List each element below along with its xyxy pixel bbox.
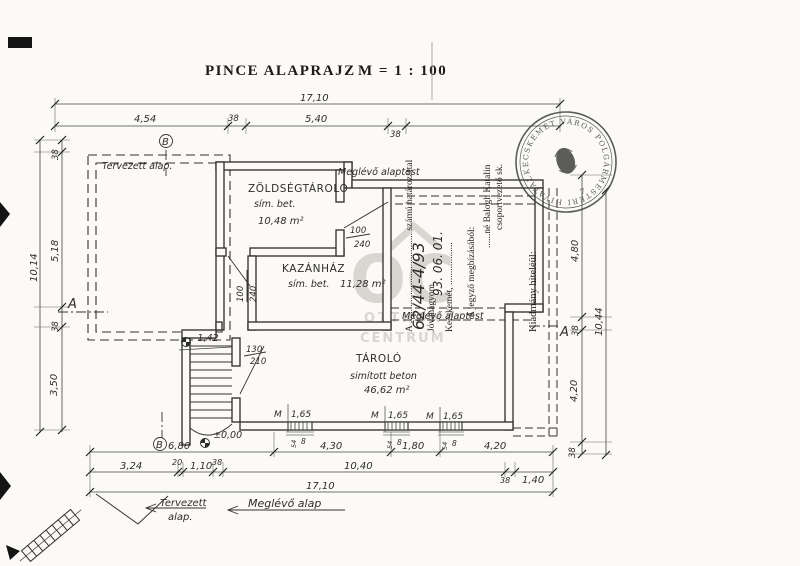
official-stamp: KECSKEMÉT VÁROS POLGÁRMESTERI HIVATALA •… [503,99,629,225]
corner-symbol [15,494,168,566]
permit-certification-line: Kiadmány hiteléül: [528,251,539,332]
dim-bottom2-6: 38 [500,476,510,485]
dim-bottom1-2: 4,30 [320,441,342,452]
dim-bottom1-1: 6,80 [168,441,190,452]
permit-city-line: Kecskemét, .................. [445,242,455,332]
door-leaf-1 [344,202,388,228]
stamp-coat-of-arms [553,146,578,176]
dim-bottom2-1: 3,24 [120,461,142,472]
room-finish-vegetable-store: sím. bet. [254,199,296,210]
corner-v-lines [96,494,168,524]
scan-artifacts [0,37,32,560]
section-marker-b-bottom: B [156,440,163,451]
level-entrance: ±0,00 [213,430,242,441]
dim-top-3: 5,40 [305,114,327,125]
dimension-labels: 17,10 4,54 38 5,40 38 10,14 38 5,18 38 3… [29,93,605,492]
scan-blot-left-1 [0,202,10,227]
window2-mark: M [371,411,379,421]
dim-right-3: 4,20 [569,380,580,402]
door1-width: 100 [350,226,366,236]
dim-bottom2-3: 1,10 [190,461,212,472]
planned-foundation-dashed [88,155,230,340]
dim-bottom2-5: 10,40 [344,461,373,472]
scan-blot-bottom-left [6,545,20,560]
planned-foundation-inner [96,163,222,332]
dim-bottom1-4: 4,20 [484,441,506,452]
dim-bottom-overall: 17,10 [306,481,335,492]
window3-sill-a: 54 [441,442,449,450]
dim-right-2: 38 [571,325,581,336]
window1-mark: M [274,410,282,420]
dim-right-1: 4,80 [570,240,581,262]
planned-foundation-label: Tervezett alap. [102,161,172,172]
dim-bottom2-4: 38 [212,458,222,467]
foundation-strip-bottom-right [513,428,557,436]
permit-date-handwritten: 93. 06. 01. [431,231,445,296]
drawing-title: PINCE ALAPRAJZ [205,63,356,79]
section-marker-a-left: A [67,297,77,312]
dim-bottom2-2: 20 [172,458,182,467]
foundation-strip-right [549,188,557,437]
permit-authority-line: A jegyző megbízásából: [467,227,477,318]
permit-approval-number-handwritten: 62/44-4/93 [409,242,428,330]
door3-width: 130 [246,345,262,355]
drawing-scale: M = 1 : 100 [358,63,447,79]
dim-top-overall: 17,10 [300,93,329,104]
window3-mark: M [426,412,434,422]
level-stair-landing: -1,42 [194,333,219,344]
section-marker-b-top: B [162,137,169,148]
staircase [190,346,232,435]
scan-blot-left-2 [0,472,11,500]
foundation-strip-top [395,196,543,204]
stair-treads [190,346,232,418]
door1-height: 240 [354,240,370,250]
window1-size: 1,65 [291,410,311,420]
dim-top-1: 4,54 [134,114,156,125]
scan-blot-top-left [8,37,32,48]
dim-right-4: 38 [568,447,578,458]
door3-height: 210 [250,357,266,367]
dim-left-4: 3,50 [49,374,60,396]
door2-height: 240 [249,286,259,302]
room-name-storage: TÁROLÓ [355,352,402,365]
floor-plan-svg: OC OTTHON CENTRUM PINCE ALAPRAJZ M = 1 :… [0,0,800,566]
room-area-storage: 46,62 m² [364,385,410,396]
legend-planned-label-1: Tervezett [160,498,208,509]
dim-left-3: 38 [51,321,61,332]
dim-left-overall: 10,14 [29,253,40,282]
window3-sill-b: 8 [452,439,457,448]
window3-size: 1,65 [443,412,463,422]
planned-foundation-outer [88,155,230,340]
dim-right-overall: 10,44 [594,307,605,336]
dim-bottom1-3: 1,80 [402,441,424,452]
permit-signatory-name: ......né Balogh Katalin [483,164,493,248]
scanned-blueprint-page: OC OTTHON CENTRUM PINCE ALAPRAJZ M = 1 :… [0,0,800,566]
permit-signatory-title: csoportvezető sk. [495,164,505,230]
dim-top-4: 38 [390,130,401,140]
room-finish-boiler-room: sím. bet. [288,279,330,290]
room-name-boiler-room: KAZÁNHÁZ [282,262,345,275]
room-area-boiler-room: 11,28 m² [340,279,386,290]
window2-size: 1,65 [388,411,408,421]
dim-bottom2-7: 1,40 [522,475,544,486]
window2-sill-a: 54 [386,441,394,449]
watermark-line2: CENTRUM [360,331,446,346]
section-line-b [162,150,166,438]
dim-left-1: 38 [51,149,61,160]
window1-sill-b: 8 [301,437,306,446]
window1-sill-a: 54 [290,440,298,448]
legend: Tervezett alap. Meglévő alap [146,497,345,523]
room-finish-storage: simított beton [350,371,417,382]
dim-left-2: 5,18 [50,240,61,262]
dim-top-2: 38 [228,114,239,124]
room-area-vegetable-store: 10,48 m² [258,216,304,227]
legend-planned-label-2: alap. [168,512,193,523]
section-marker-a-right: A [559,325,569,340]
legend-existing-label: Meglévő alap [248,497,321,510]
room-name-vegetable-store: ZÖLDSÉGTÁROLÓ [248,182,348,195]
door2-width: 100 [236,286,246,302]
